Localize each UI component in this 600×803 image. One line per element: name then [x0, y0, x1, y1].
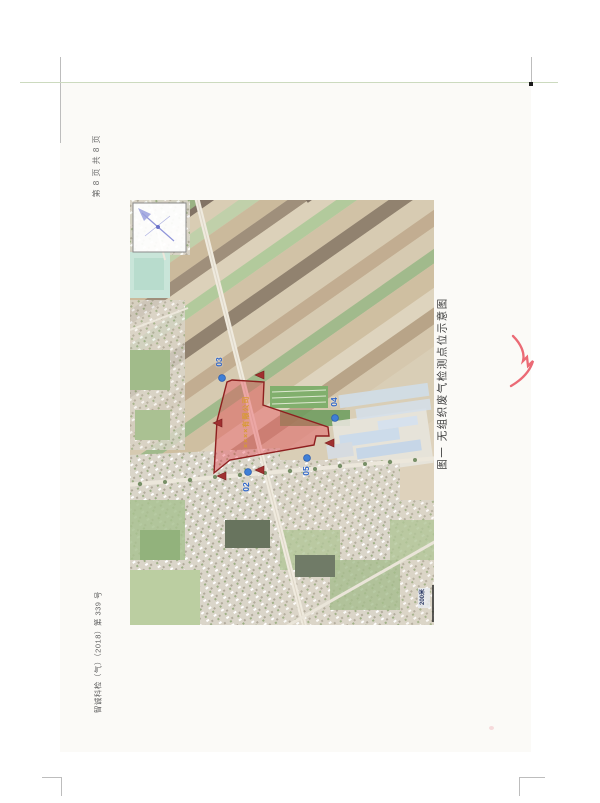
crop-mark-bottom-left-vertical	[61, 777, 62, 796]
marker-label-04: 04	[329, 394, 339, 410]
marker-dot-03	[219, 375, 226, 382]
marker-label-03: 03	[214, 354, 224, 370]
crop-mark-bottom-left-horizontal	[42, 777, 61, 778]
site-name-label: ××××有限公司	[241, 408, 253, 448]
scanned-document-page: 第 8 页 共 8 页 智诚科检（气）（2018）第 339 号 图一 无组织废…	[0, 0, 600, 803]
satellite-image	[130, 200, 434, 625]
compass-inset	[133, 203, 186, 252]
registration-dot	[529, 82, 533, 86]
marker-dot-02	[245, 469, 252, 476]
satellite-map-figure: 03 04 05 02 ××××有限公司 200米	[130, 200, 434, 625]
marker-dot-04	[332, 415, 339, 422]
marker-dot-05	[304, 455, 311, 462]
crop-mark-bottom-right-horizontal	[519, 777, 545, 778]
crop-mark-top-horizontal-line	[20, 82, 558, 83]
marker-label-05: 05	[301, 463, 311, 479]
reviewer-signature-mark	[492, 328, 540, 390]
ink-speck	[489, 726, 494, 730]
crop-mark-bottom-right-vertical	[519, 777, 520, 796]
marker-label-02: 02	[241, 479, 251, 495]
scale-label: 200米	[419, 586, 427, 608]
crop-mark-top-right-vertical	[531, 57, 532, 85]
report-number: 智诚科检（气）（2018）第 339 号	[91, 580, 105, 725]
crop-mark-top-left-vertical	[60, 57, 61, 143]
figure-caption: 图一 无组织废气检测点位示意图	[435, 304, 450, 464]
page-number-header: 第 8 页 共 8 页	[89, 131, 103, 201]
